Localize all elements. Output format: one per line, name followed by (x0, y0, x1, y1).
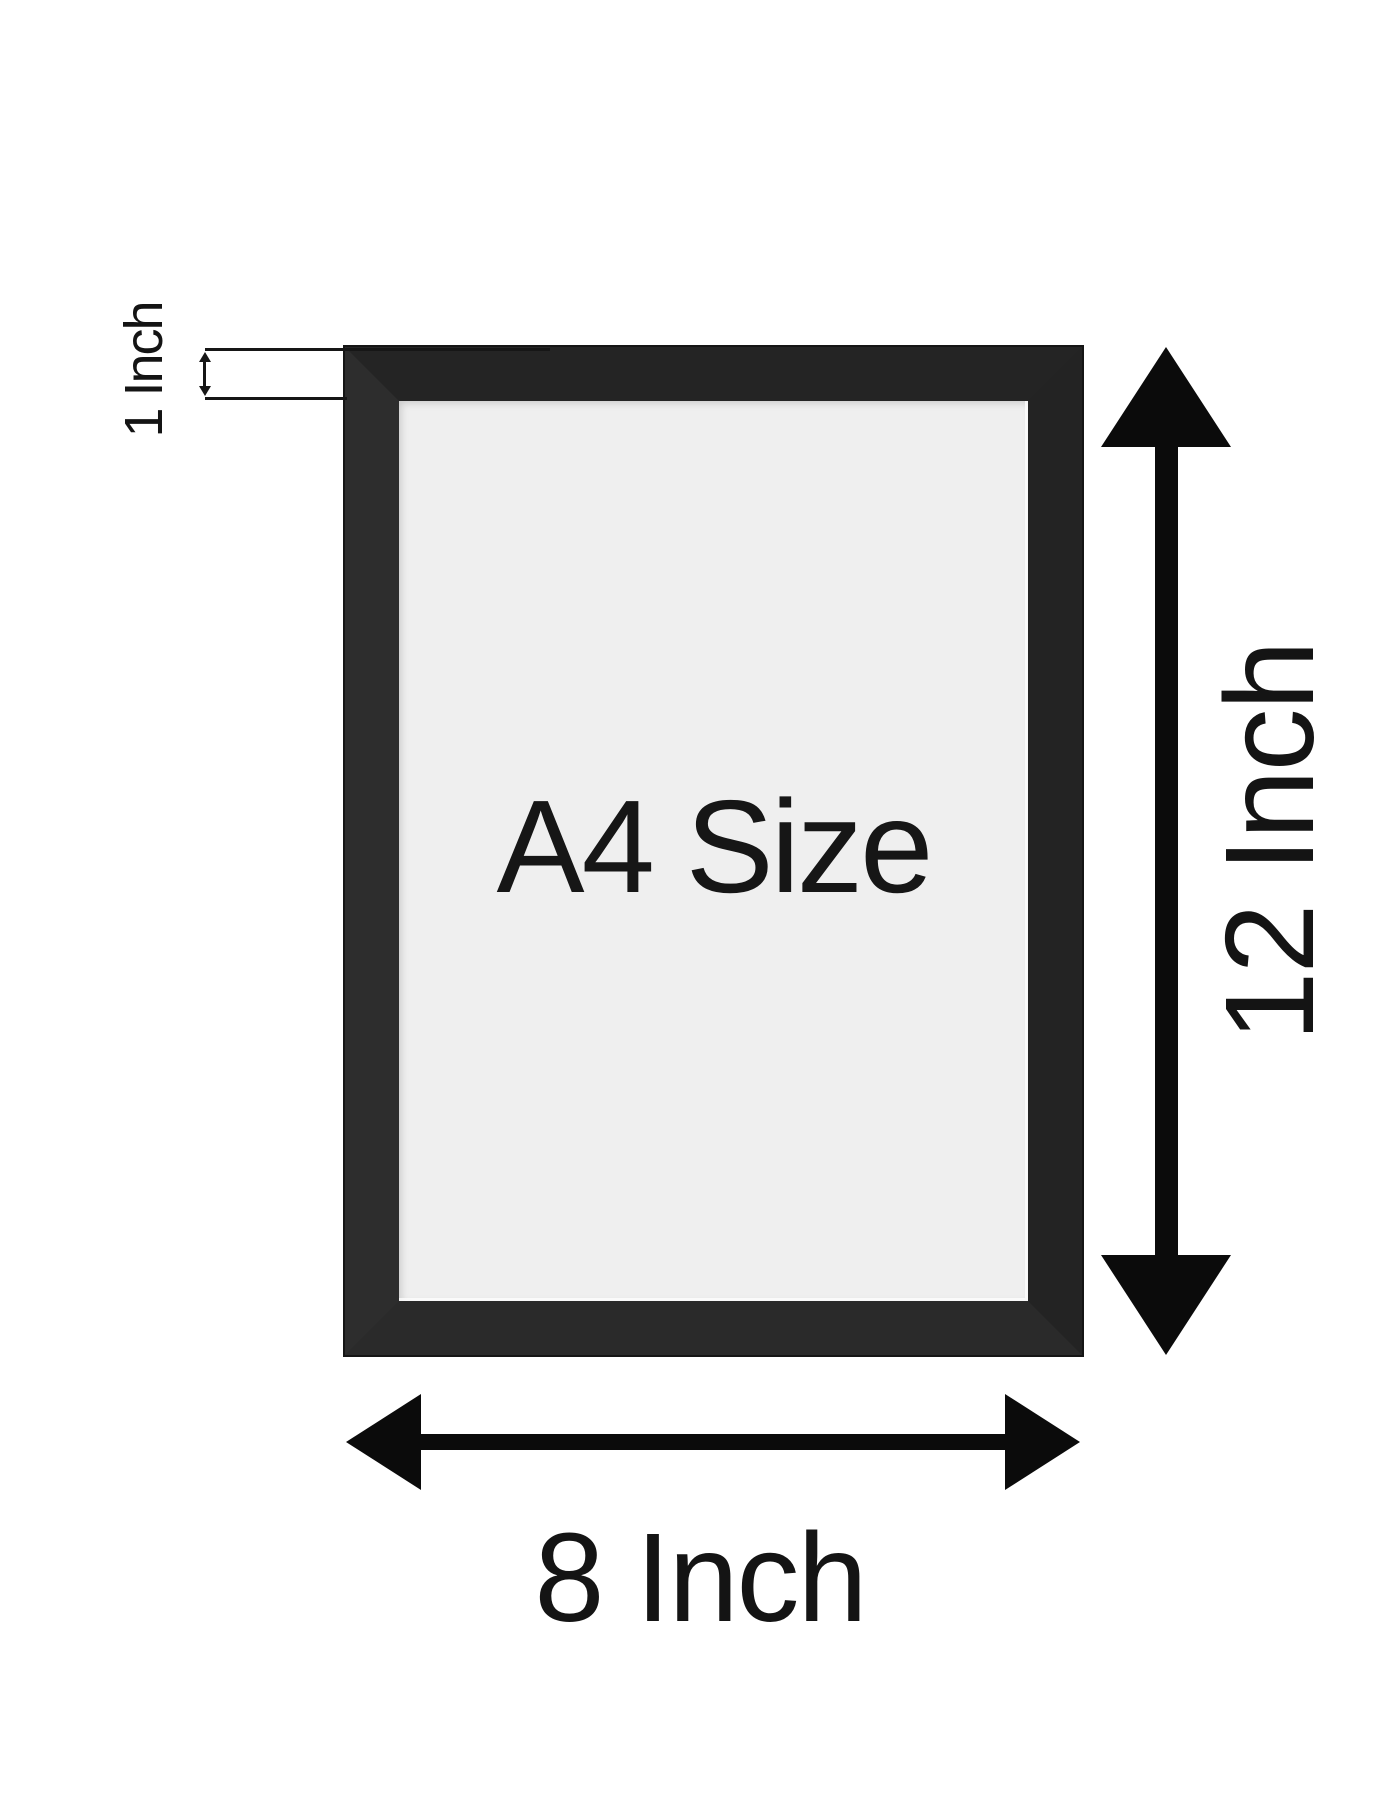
border-width-arrow-icon (198, 352, 211, 396)
border-width-ref-line-top (205, 348, 550, 351)
arrow-shaft (1155, 447, 1178, 1255)
arrow-up-icon (1101, 347, 1231, 447)
arrow-down-icon (1101, 1255, 1231, 1355)
arrow-shaft (421, 1434, 1005, 1450)
arrow-right-icon (1005, 1394, 1080, 1490)
arrow-up-icon (199, 352, 211, 362)
border-width-label: 1 Inch (117, 302, 171, 437)
arrow-down-icon (199, 386, 211, 396)
arrow-shaft (203, 362, 206, 386)
frame-dimension-diagram: 1 Inch A4 Size 12 Inch 8 Inch (0, 0, 1376, 1796)
photo-frame: A4 Size (345, 347, 1082, 1355)
border-width-ref-line-bottom (205, 397, 347, 400)
a4-size-label: A4 Size (497, 781, 931, 913)
width-dimension-arrow (346, 1394, 1080, 1490)
width-label: 8 Inch (534, 1515, 865, 1641)
frame-interior: A4 Size (399, 401, 1028, 1301)
arrow-left-icon (346, 1394, 421, 1490)
height-label: 12 Inch (1207, 642, 1333, 1041)
